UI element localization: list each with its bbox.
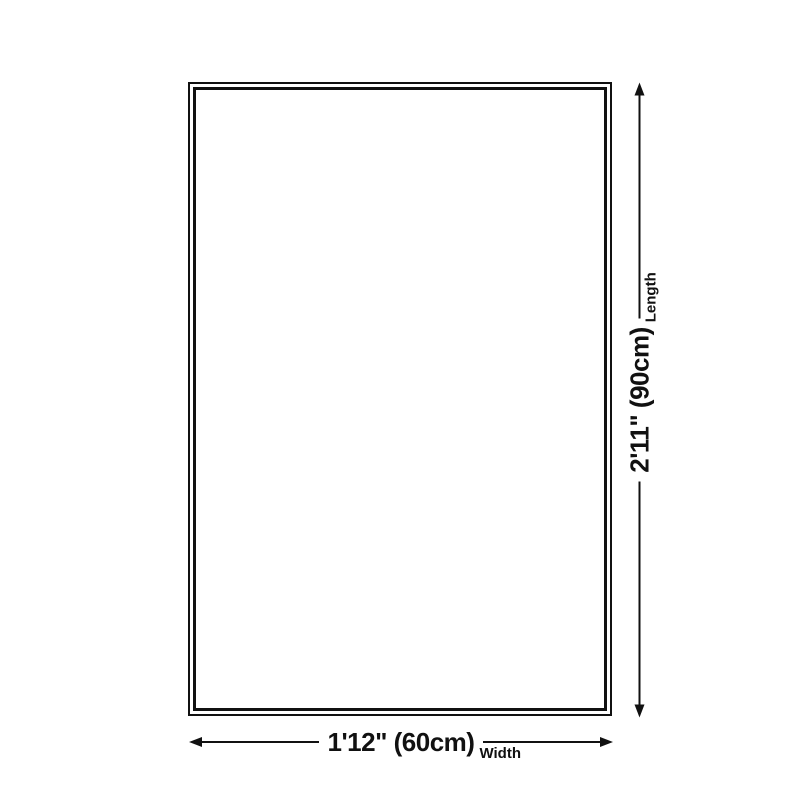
length-dimension-value: 2'11" (90cm) [627, 318, 653, 482]
size-diagram-canvas: 1'12" (60cm) Width 2'11" (90cm) Length [0, 0, 800, 800]
width-dimension-value: 1'12" (60cm) [319, 729, 484, 755]
arrow-right-icon [600, 737, 613, 747]
width-dimension-line-left [202, 741, 319, 744]
product-outline-inner-border [193, 87, 607, 711]
arrow-down-icon [635, 705, 645, 718]
product-outline-rectangle [188, 82, 612, 716]
length-dimension-label: Length [643, 272, 658, 322]
arrow-left-icon [189, 737, 202, 747]
length-dimension-line-upper: Length [638, 96, 641, 319]
length-dimension-line-lower [638, 482, 641, 705]
width-dimension: 1'12" (60cm) Width [189, 724, 613, 760]
arrow-up-icon [635, 83, 645, 96]
width-dimension-label: Width [479, 746, 521, 761]
width-dimension-line-right: Width [483, 741, 600, 744]
length-dimension: 2'11" (90cm) Length [622, 83, 658, 718]
